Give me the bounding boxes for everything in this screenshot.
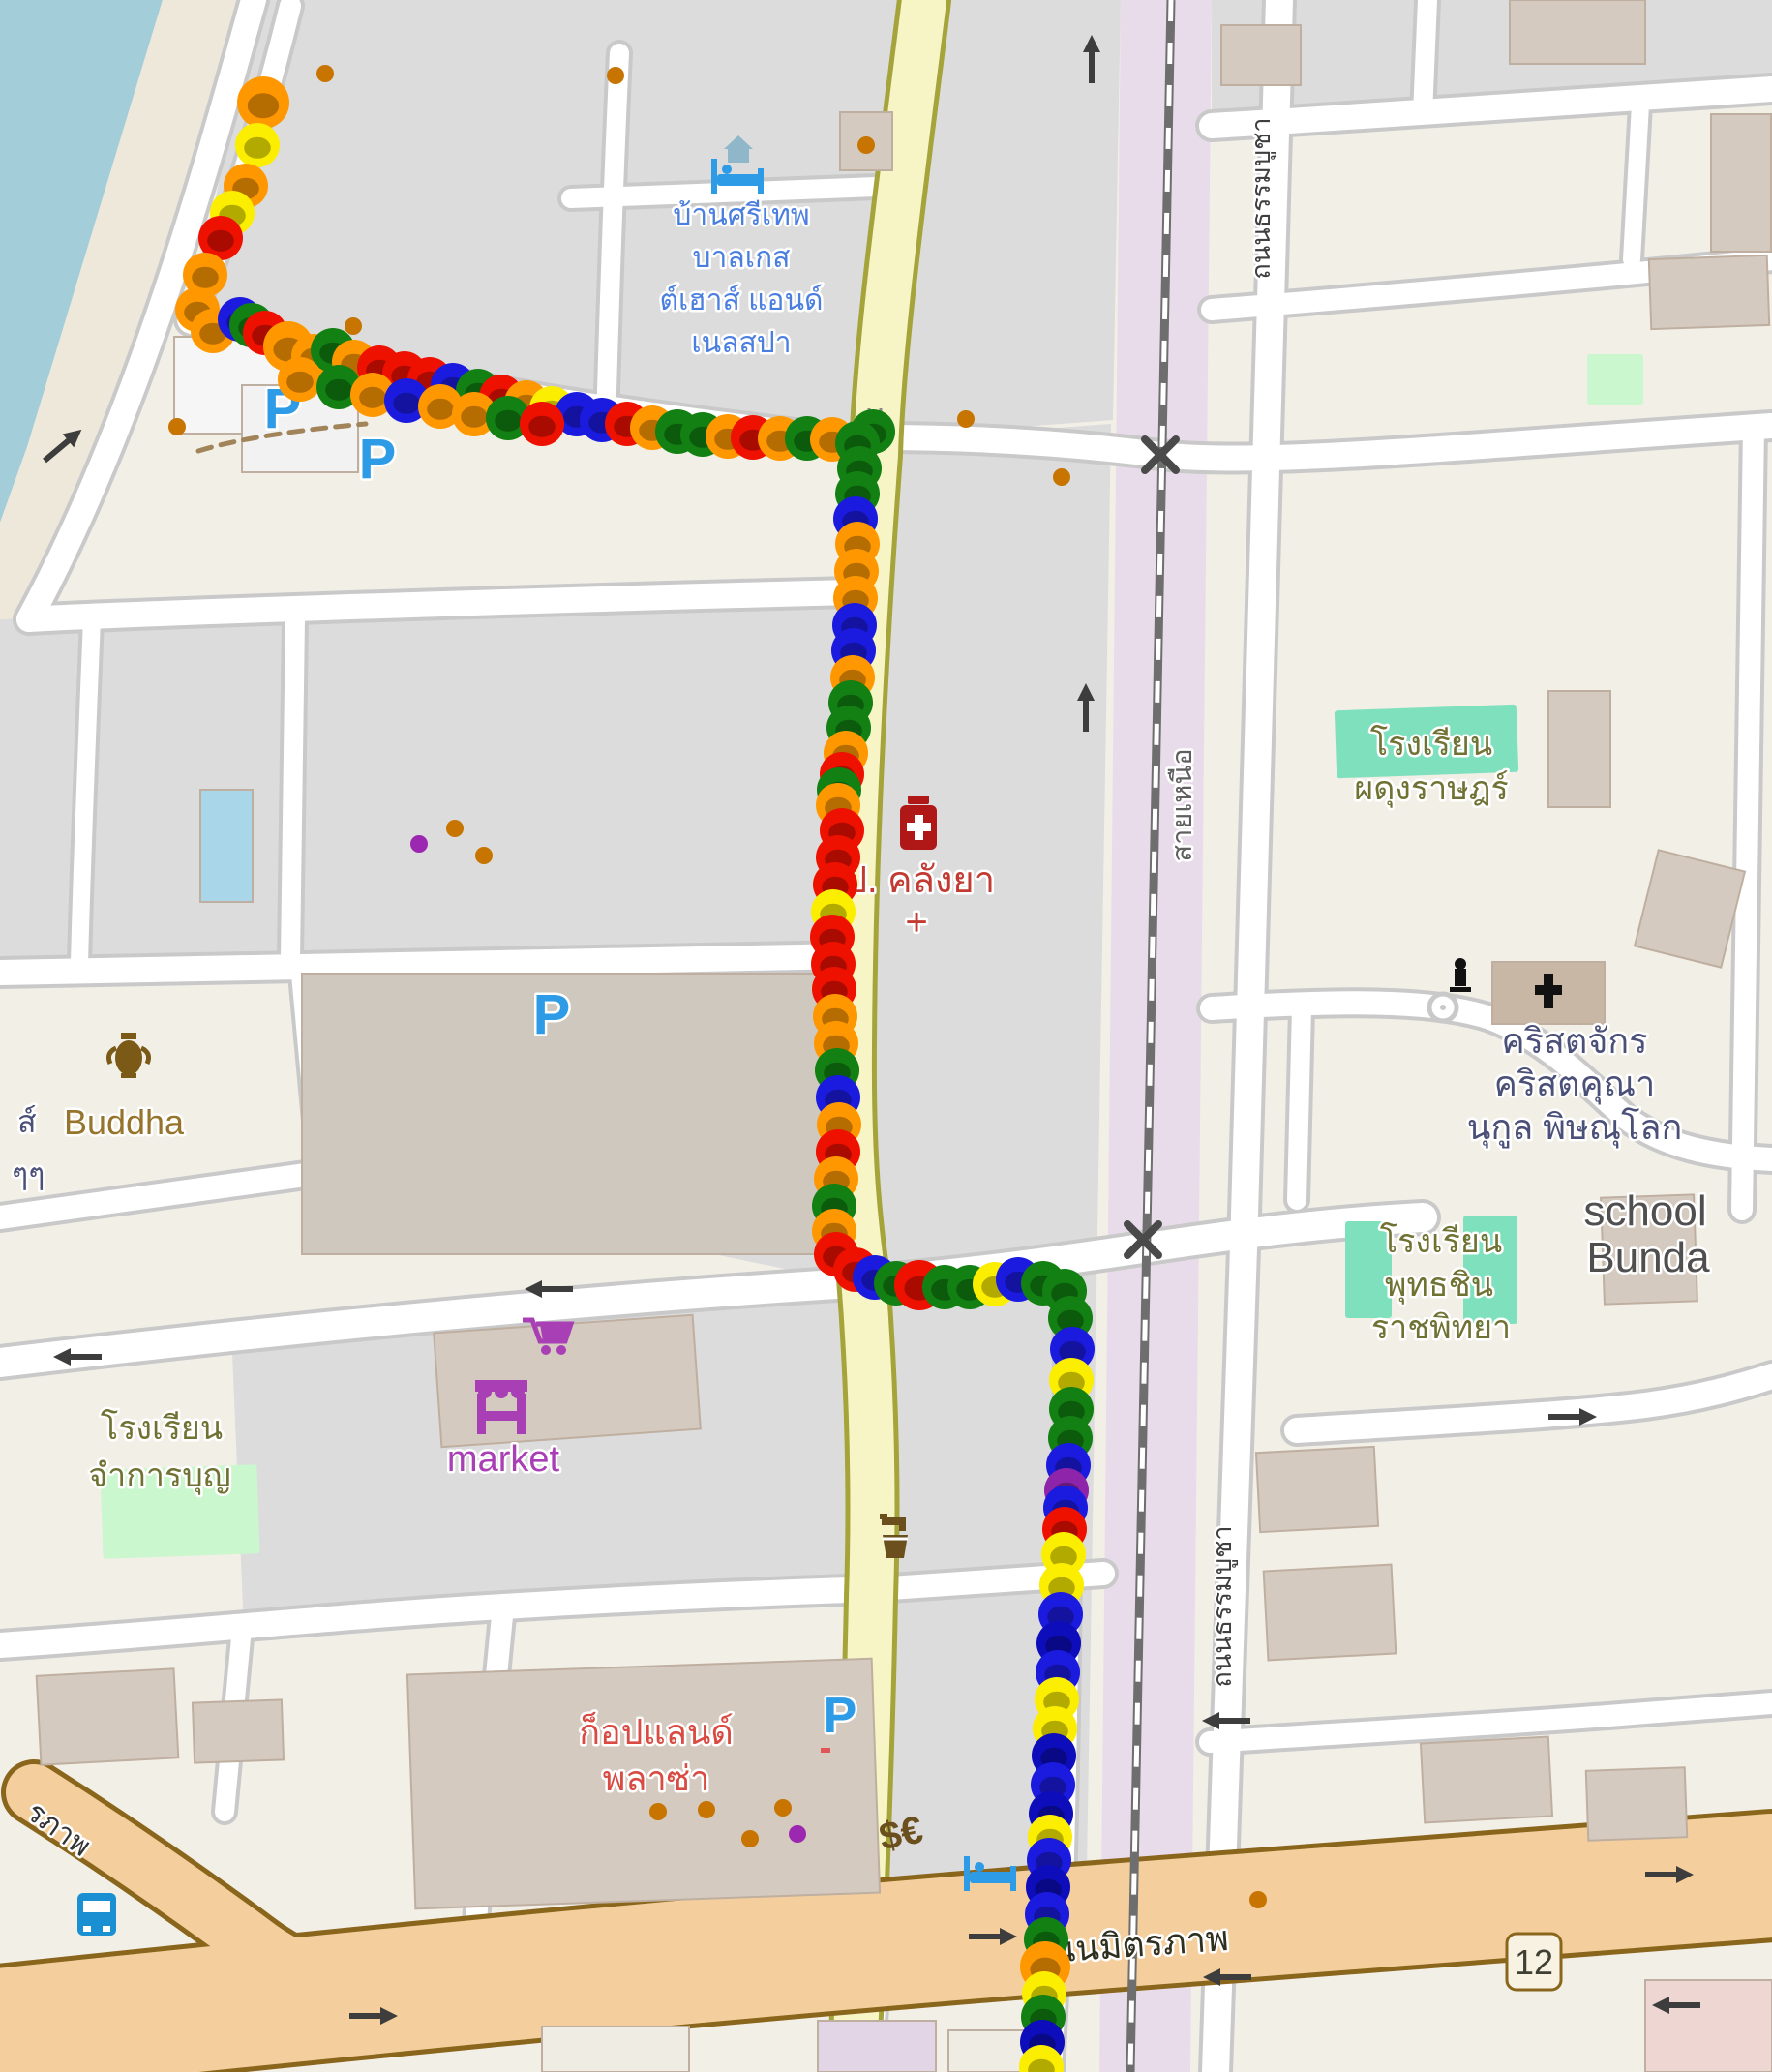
route-dot	[235, 123, 280, 167]
school-phutthachin-label: โรงเรียน	[1380, 1222, 1502, 1260]
school-phutthachin-label: ราชพิทยา	[1371, 1309, 1511, 1346]
building	[1645, 1980, 1772, 2072]
pharmacy-label: ป. คลังยา	[844, 860, 995, 901]
edge-fragment-label: ส์	[17, 1104, 37, 1139]
poi-dot	[168, 418, 186, 435]
market-stall-icon	[477, 1411, 526, 1421]
route-dot	[520, 402, 564, 446]
route-dot-inner	[461, 406, 488, 428]
guesthouse-label: เนลสปา	[691, 327, 791, 359]
school-chamkanbun-label: โรงเรียน	[101, 1409, 223, 1447]
building	[1221, 25, 1301, 85]
building	[1711, 114, 1771, 252]
church-cross-icon	[1535, 985, 1562, 995]
poi-dot	[607, 67, 624, 84]
monument-icon	[1455, 969, 1466, 986]
pharmacy-icon	[908, 796, 929, 804]
edge-fragment-label: ๆๆ	[12, 1156, 45, 1191]
road	[1632, 105, 1640, 259]
road	[290, 619, 295, 958]
parking-icon: P	[359, 428, 397, 491]
school-chamkanbun-label: จำการบุญ	[88, 1457, 231, 1495]
building	[542, 2027, 689, 2072]
poi-dot-purple	[789, 1825, 806, 1843]
school-bunda-label: Bunda	[1586, 1234, 1710, 1281]
bed-icon	[758, 168, 764, 194]
route-dot-inner	[248, 93, 279, 118]
bed-icon	[970, 1872, 1014, 1883]
monument-icon	[1455, 958, 1466, 970]
buddha-vase-icon	[121, 1073, 136, 1078]
thammabucha-road-label: ถนนธรรมบูชา	[1246, 117, 1276, 279]
building	[1421, 1737, 1552, 1823]
bed-icon	[975, 1862, 984, 1872]
bed-icon	[1010, 1866, 1016, 1891]
guesthouse-icon	[728, 149, 749, 163]
bus-stop-icon	[77, 1893, 116, 1936]
route-dot	[278, 357, 322, 402]
guesthouse-label: บ้านศรีเทพ	[673, 199, 809, 231]
road	[571, 187, 876, 198]
poi-dot	[1053, 468, 1070, 486]
guesthouse-label: บาลเกส	[692, 242, 790, 274]
building	[1548, 691, 1610, 807]
market-stall-icon	[495, 1385, 508, 1398]
poi-dot	[1249, 1891, 1267, 1908]
thammabucha-road-label: ถนนธรรมบูชา	[1208, 1525, 1238, 1687]
guesthouse-label: ต์เฮาส์ แอนด์	[660, 284, 824, 316]
green-patch	[1587, 354, 1643, 405]
currency-exchange-icon: $€	[876, 1809, 927, 1859]
route-dot-inner	[393, 393, 420, 414]
building	[1264, 1565, 1397, 1661]
barrier-tick-icon	[821, 1748, 830, 1753]
bed-icon	[711, 159, 717, 194]
pharmacy-icon	[907, 823, 931, 831]
route-shield-label: 12	[1515, 1942, 1553, 1982]
map-canvas: $€บ้านศรีเทพบาลเกสต์เฮาส์ แอนด์เนลสปาป. …	[0, 0, 1772, 2072]
map-image: $€บ้านศรีเทพบาลเกสต์เฮาส์ แอนด์เนลสปาป. …	[0, 0, 1772, 2072]
church-label: คริสตคุณา	[1494, 1064, 1655, 1105]
buddha-vase-icon	[115, 1040, 142, 1075]
bus-stop-icon	[103, 1926, 110, 1932]
route-dot-inner	[207, 230, 234, 252]
poi-dot	[446, 820, 464, 837]
railway-line-label: สายเหนือ	[1167, 748, 1198, 861]
poi-dot	[649, 1803, 667, 1820]
route-dot-inner	[359, 387, 386, 408]
poi-dot	[345, 317, 362, 335]
road	[0, 956, 850, 973]
building	[193, 1699, 284, 1762]
school-padung-label: ผดุงราษฎร์	[1354, 770, 1508, 808]
building	[200, 790, 253, 902]
route-dot-inner	[427, 399, 454, 420]
shopping-cart-icon	[556, 1345, 566, 1355]
poi-dot-purple	[410, 835, 428, 853]
route-dot	[237, 76, 289, 129]
poi-dot	[857, 136, 875, 154]
building	[1510, 0, 1645, 64]
parking-icon: P	[824, 1688, 857, 1744]
barrier-tick-icon	[821, 1748, 830, 1753]
building	[1649, 255, 1769, 329]
pharmacy-plus-label: +	[905, 901, 927, 944]
building	[37, 1668, 179, 1764]
school-bunda-label: school	[1583, 1187, 1706, 1235]
poi-dot	[316, 65, 334, 82]
roundabout-icon	[1429, 994, 1457, 1021]
shopping-cart-icon	[541, 1345, 551, 1355]
route-dot-inner	[325, 379, 352, 401]
route-dot-inner	[495, 410, 522, 432]
poi-dot	[741, 1830, 759, 1847]
bus-stop-icon	[83, 1901, 110, 1912]
shopping-cart-icon	[540, 1324, 571, 1341]
road	[1742, 426, 1754, 1210]
topland-label: พลาซ่า	[603, 1758, 710, 1798]
road	[1423, 0, 1427, 114]
building	[302, 974, 844, 1254]
school-phutthachin-label: พุทธชิน	[1385, 1267, 1493, 1305]
bed-icon	[964, 1856, 970, 1891]
building	[1256, 1447, 1378, 1532]
building	[818, 2021, 936, 2072]
poi-dot	[957, 410, 975, 428]
school-padung-label: โรงเรียน	[1370, 725, 1492, 763]
route-dot-inner	[192, 267, 219, 288]
building	[1586, 1767, 1687, 1841]
market-label: market	[447, 1439, 560, 1480]
route-dot-inner	[286, 372, 314, 393]
buddha-vase-icon	[121, 1033, 136, 1039]
roundabout-icon	[1440, 1005, 1446, 1010]
buddha-label: Buddha	[64, 1102, 185, 1142]
bed-icon	[717, 174, 762, 186]
monument-icon	[1450, 987, 1471, 992]
drinking-water-icon	[899, 1517, 906, 1531]
poi-dot	[698, 1801, 715, 1818]
church-label: นุกูล พิษณุโลก	[1467, 1107, 1683, 1149]
poi-dot	[475, 847, 493, 864]
route-dot-inner	[244, 137, 271, 159]
bus-stop-icon	[83, 1926, 91, 1932]
topland-label: ก็อปแลนด์	[579, 1710, 734, 1752]
poi-dot	[774, 1799, 792, 1817]
bed-icon	[722, 165, 732, 174]
route-dot-inner	[528, 416, 556, 437]
residential-area	[0, 594, 850, 974]
road	[1297, 1008, 1302, 1200]
church-label: คริสตจักร	[1502, 1021, 1648, 1061]
currency-exchange-icon: $€	[876, 1809, 927, 1859]
parking-icon: P	[533, 983, 571, 1046]
